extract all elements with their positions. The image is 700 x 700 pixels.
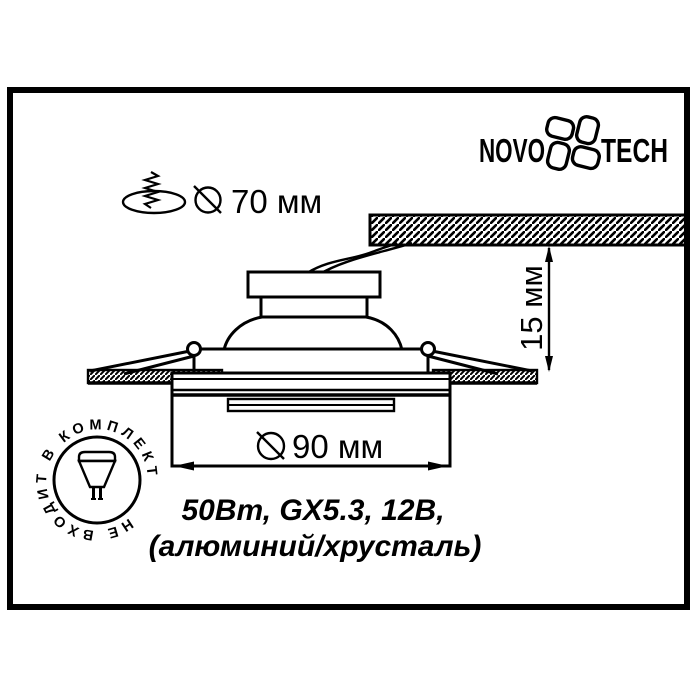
lamp-housing xyxy=(248,272,380,297)
diagram-page: NOVO TECH 70 мм xyxy=(0,0,700,700)
trim-ring: 90 мм xyxy=(172,373,450,471)
technical-diagram: NOVO TECH 70 мм xyxy=(0,0,700,700)
trim-diameter-label: 90 мм xyxy=(292,428,383,465)
mounting-plate xyxy=(194,349,428,373)
lamp-dome xyxy=(224,317,402,350)
ceiling-slab xyxy=(370,215,687,245)
depth-label: 15 мм xyxy=(514,265,549,351)
lamp-neck xyxy=(261,296,367,318)
spec-line-2: (алюминий/хрусталь) xyxy=(149,530,482,563)
cutout-diameter-label: 70 мм xyxy=(231,183,322,220)
logo-text-novo: NOVO xyxy=(479,132,545,169)
spec-line-1: 50Вт, GX5.3, 12В, xyxy=(181,494,444,527)
logo-text-tech: TECH xyxy=(601,132,668,169)
